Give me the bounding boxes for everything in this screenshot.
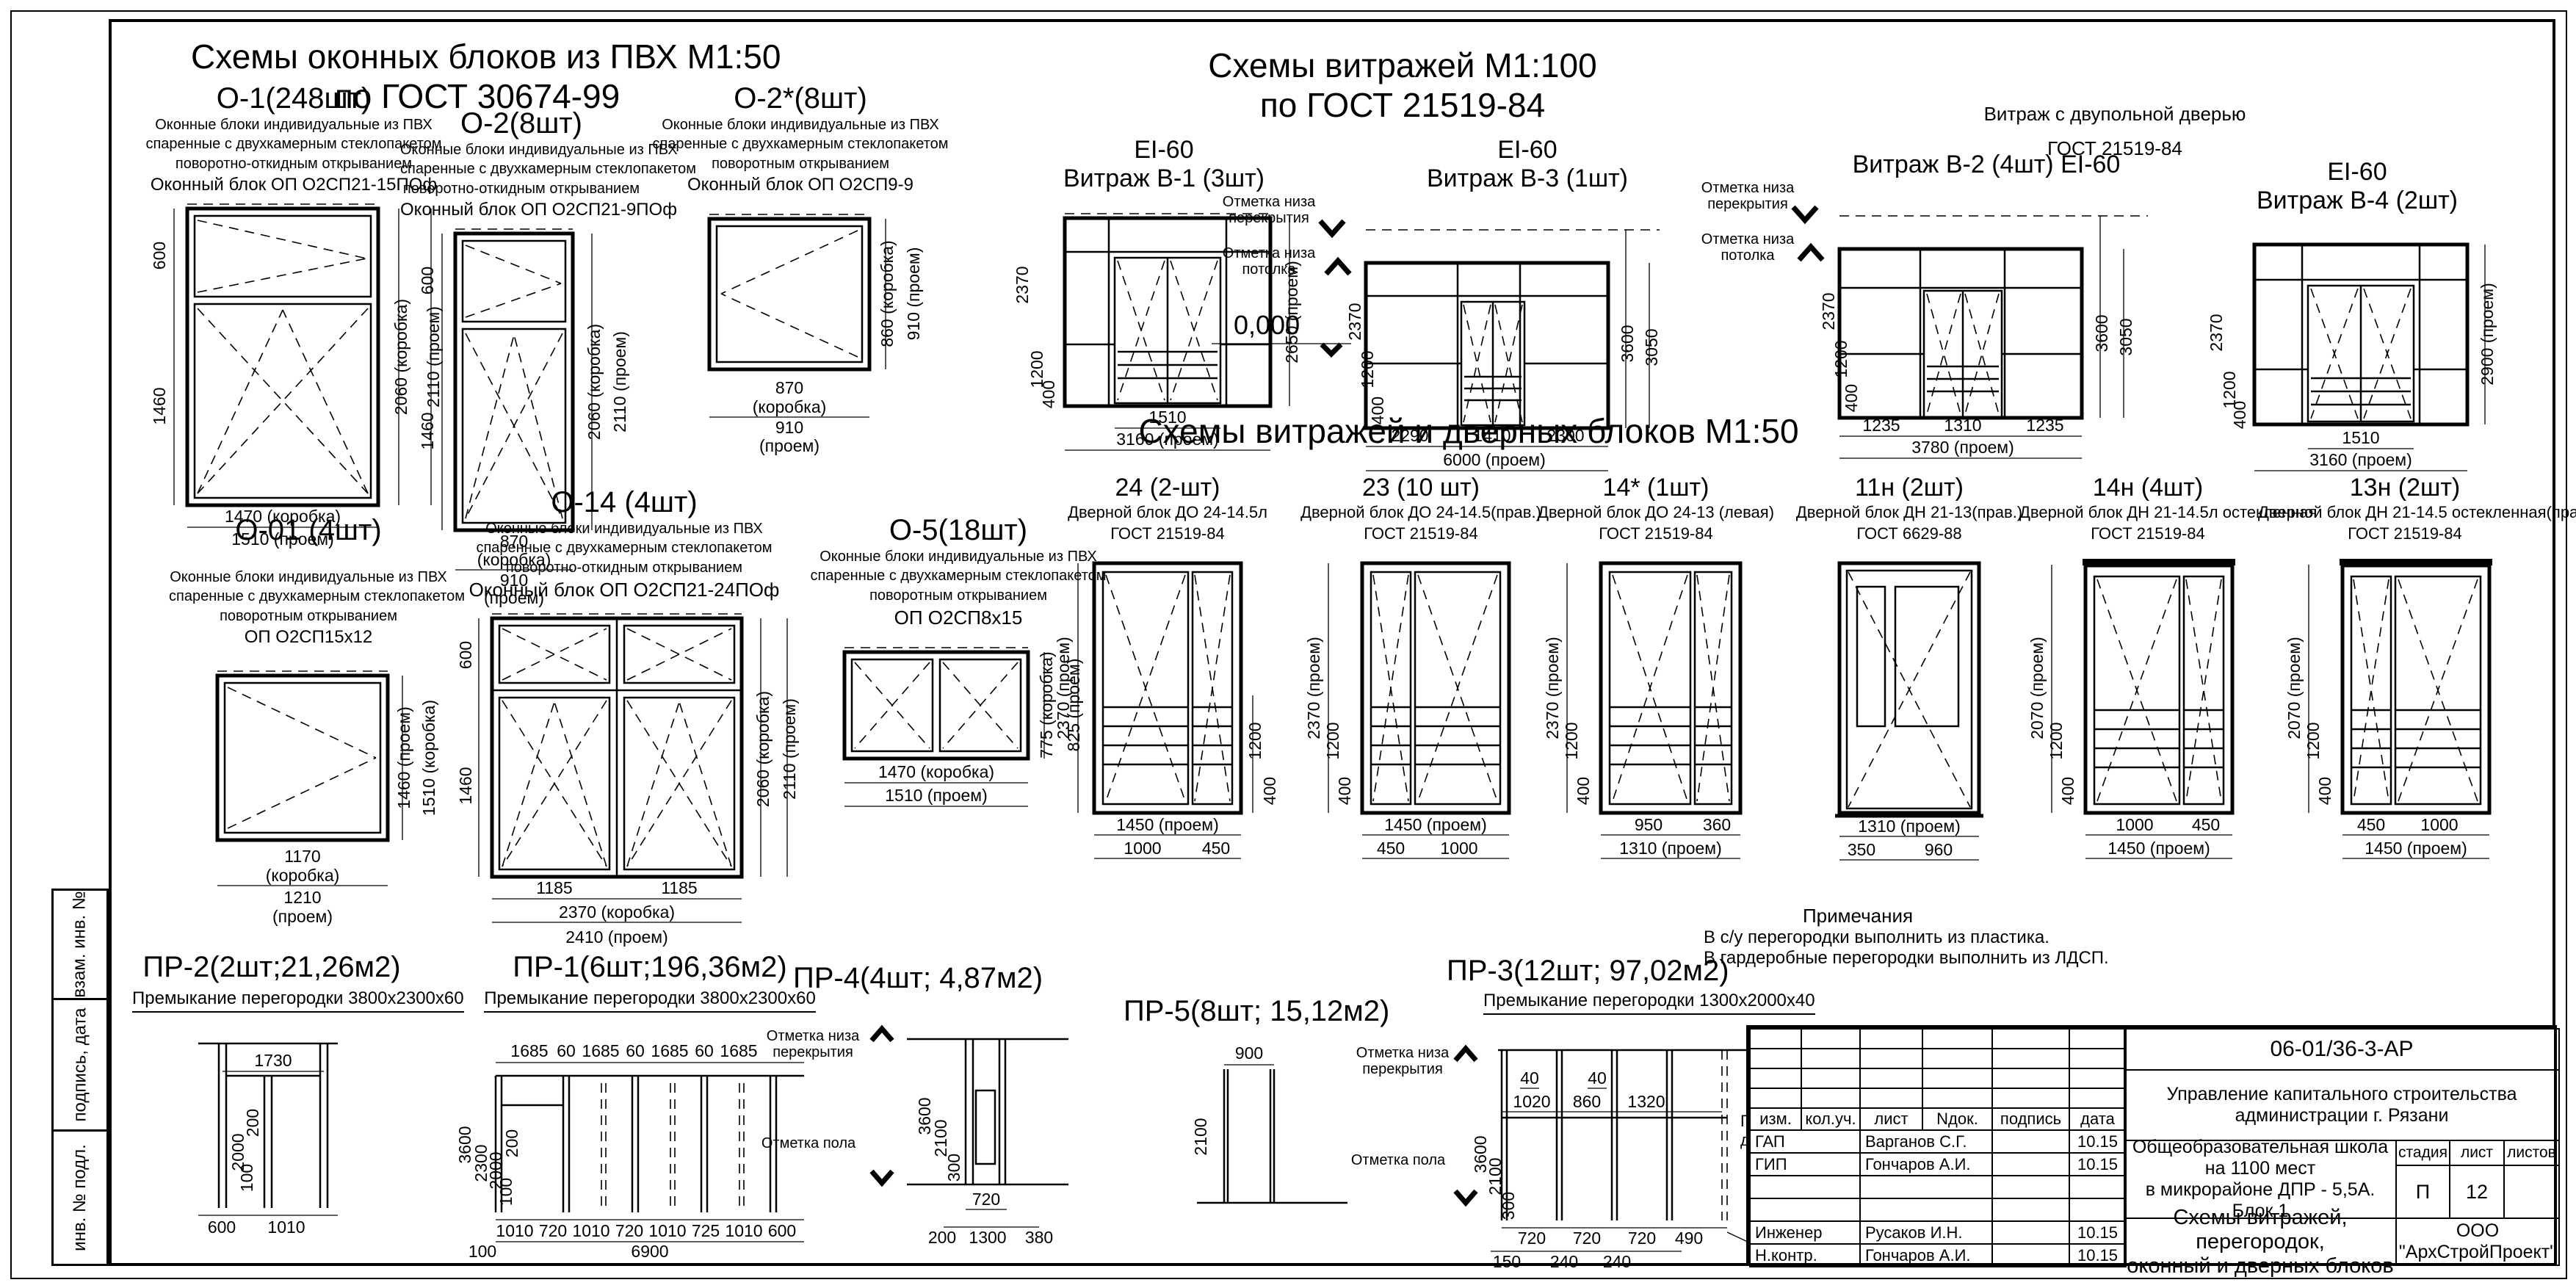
dim: 3600 <box>1618 325 1637 362</box>
row-sign <box>1992 1176 2069 1198</box>
dim: 200 <box>928 1228 956 1247</box>
dim: (коробка) <box>753 397 827 416</box>
mark-slab-bottom: Отметка низа <box>767 1028 860 1044</box>
o2-desc-line: Оконный блок ОП О2СП21-9ПОф <box>400 198 643 222</box>
o01-desc-line: ОП О2СП15х12 <box>169 626 448 649</box>
v4-title: Витраж В-4 (2шт) <box>2188 187 2526 215</box>
dim: 2110 (проем) <box>780 699 799 800</box>
figure-d13n: 13н (2шт) Дверной блок ДН 21-14.5 остекл… <box>2258 474 2552 871</box>
row-date: 10.15 <box>2069 1244 2126 1267</box>
d14n-desc: Дверной блок ДН 21-14.5л остекленная <box>2019 502 2276 524</box>
v4-fire-rating: EI-60 <box>2188 158 2526 187</box>
dim: 1685 <box>582 1041 619 1060</box>
dim: (проем) <box>759 436 820 455</box>
arrow-down-icon <box>1793 207 1817 220</box>
row-name: Гончаров А.И. <box>1860 1153 1992 1176</box>
dim: 300 <box>1499 1192 1518 1220</box>
sheet-label: лист <box>2449 1140 2505 1166</box>
org-name: Управление капитального строительства ад… <box>2124 1069 2560 1141</box>
dim: 2070 (проем) <box>2027 637 2047 739</box>
o2-desc-line: спаренные с двухкамерным стеклопакетом <box>400 159 643 178</box>
d11n-desc: ГОСТ 6629-88 <box>1792 524 2027 545</box>
row-date: 10.15 <box>2069 1221 2126 1244</box>
mark-slab-bottom: Отметка низа <box>1701 180 1795 196</box>
dim: 1450 (проем) <box>1384 815 1487 834</box>
dim: 400 <box>1335 777 1354 805</box>
dim: 400 <box>1842 384 1861 412</box>
mark-slab-bottom: Отметка низа <box>1223 194 1316 210</box>
dim: 1235 <box>2026 416 2063 435</box>
o01-desc-line: Оконные блоки индивидуальные из ПВХ <box>169 568 448 587</box>
dim: 100 <box>237 1164 256 1192</box>
row-sign <box>1992 1244 2069 1267</box>
dim: 1000 <box>2420 815 2458 834</box>
v3-drawing: Отметка низа перекрытия Отметка низа пот… <box>1182 193 1696 480</box>
dim: 1320 <box>1627 1092 1665 1111</box>
dim: 40 <box>1520 1068 1539 1088</box>
dim: 200 <box>502 1129 521 1157</box>
d13n-title: 13н (2шт) <box>2258 474 2552 502</box>
row-sign <box>1992 1153 2069 1176</box>
dim: 1000 <box>2116 815 2153 834</box>
v4-drawing: 2370 1200 400 2900 (проем) 1510 3160 (пр… <box>2188 215 2526 476</box>
o14-title: О-14 (4шт) <box>441 486 808 519</box>
dim: (проем) <box>272 907 333 926</box>
figure-pr4: ПР-4(4шт; 4,87м2) Отметка низа перекрыти… <box>742 962 1094 1252</box>
row-name: Русаков И.Н. <box>1860 1221 1992 1244</box>
o2s-desc-line: спаренные с двухкамерным стеклопакетом <box>646 134 955 153</box>
arrow-up-icon <box>1455 1049 1476 1060</box>
d14n-drawing: 2070 (проем) 1200 400 1000 450 1450 (про… <box>2027 544 2269 867</box>
dim: 400 <box>1574 777 1593 805</box>
o14-desc-line: Оконные блоки индивидуальные из ПВХ <box>441 519 808 538</box>
vitrage-section-title: Схемы витражей М1:100по ГОСТ 21519-84 <box>1153 46 1652 125</box>
mark-floor: Отметка пола <box>1351 1152 1446 1168</box>
dim: 2070 (проем) <box>2284 637 2304 739</box>
o2-desc-line: Оконные блоки индивидуальные из ПВХ <box>400 140 643 159</box>
dim: 1460 <box>456 767 475 805</box>
dim: 1410 <box>1473 426 1510 445</box>
table-row: Н.контр.Гончаров А.И.10.15 <box>1750 1244 2126 1267</box>
dim: 400 <box>2230 401 2249 429</box>
d11n-desc: Дверной блок ДН 21-13(прав.) <box>1792 502 2027 524</box>
d11n-drawing: 1310 (проем) 350 960 <box>1795 544 2023 867</box>
arrow-down-icon <box>1455 1191 1476 1203</box>
dim: 360 <box>1703 815 1731 834</box>
o5-desc-line: поворотным открыванием <box>800 586 1116 605</box>
dim: 1510 (коробка) <box>419 700 438 816</box>
doc-code: 06-01/36-3-АР <box>2124 1028 2560 1071</box>
dim: 3050 <box>2116 318 2135 355</box>
dim: 725 <box>692 1221 720 1240</box>
d23-title: 23 (10 шт) <box>1296 474 1546 502</box>
drawing-sheet: взам. инв. № подпись, дата инв. № подл. … <box>0 0 2576 1288</box>
sheets-label: листов <box>2503 1140 2560 1166</box>
o01-desc-line: спаренные с двухкамерным стеклопакетом <box>169 587 448 606</box>
mark-slab-bottom: перекрытия <box>1229 210 1309 226</box>
o2-desc-line: поворотно-откидным открыванием <box>400 179 643 198</box>
dim: 1310 (проем) <box>1858 817 1961 836</box>
d23-desc: ГОСТ 21519-84 <box>1296 524 1546 545</box>
row-name <box>1860 1198 1992 1221</box>
table-row <box>1750 1198 2126 1221</box>
d13n-drawing: 2070 (проем) 1200 400 450 1000 1450 (про… <box>2284 544 2526 867</box>
o01-drawing: 1460 (проем) 1510 (коробка) 1170 (коробк… <box>176 649 441 928</box>
dim: 1000 <box>1124 839 1161 858</box>
dim: 400 <box>1260 777 1279 805</box>
dim: 2370 (проем) <box>1304 637 1323 739</box>
dim: 3160 (проем) <box>2309 450 2412 469</box>
dim: 1210 <box>283 888 321 907</box>
table-row: ИнженерРусаков И.Н.10.15 <box>1750 1221 2126 1244</box>
o5-desc: Оконные блоки индивидуальные из ПВХ спар… <box>800 547 1116 630</box>
dim: 1020 <box>1513 1092 1550 1111</box>
dim: 1010 <box>267 1218 305 1237</box>
figure-v3: EI-60 Витраж В-3 (1шт) Отметка низа пере… <box>1175 136 1704 483</box>
pr5-title: ПР-5(8шт; 15,12м2) <box>1124 995 1366 1028</box>
dim: 450 <box>2192 815 2220 834</box>
dim: 1450 (проем) <box>2365 839 2467 858</box>
dim: 1510 (проем) <box>885 786 988 805</box>
dim: 720 <box>1518 1229 1546 1248</box>
table-row: ГИПГончаров А.И.10.15 <box>1750 1153 2126 1176</box>
dim: 150 <box>1493 1252 1521 1271</box>
dim: 1170 <box>284 847 320 866</box>
dim: 2110 (проем) <box>610 331 629 433</box>
col-list: лист <box>1860 1108 1922 1130</box>
row-role <box>1750 1176 1860 1198</box>
row-sign <box>1992 1221 2069 1244</box>
dim: 450 <box>1377 839 1405 858</box>
dim: 240 <box>1603 1252 1631 1271</box>
dim: 1200 <box>1358 350 1377 388</box>
dim: 1010 <box>496 1221 533 1240</box>
dim: 1200 <box>1831 340 1850 377</box>
v2-drawing: Отметка низа перекрытия Отметка низа пот… <box>1674 179 2159 466</box>
dim: 240 <box>1550 1252 1578 1271</box>
dim: 3050 <box>1642 328 1661 366</box>
row-role: Н.контр. <box>1750 1244 1860 1267</box>
d13n-desc: ГОСТ 21519-84 <box>2258 524 2552 545</box>
dim: 1470 (коробка) <box>878 762 994 781</box>
dim: 1510 <box>2342 428 2379 447</box>
row-sign <box>1992 1130 2069 1153</box>
dim: 1460 (проем) <box>394 706 413 809</box>
dim: 400 <box>2058 777 2077 805</box>
o2s-drawing: 860 (коробка) 910 (проем) 870 (коробка) … <box>668 197 933 465</box>
dim: (коробка) <box>266 866 340 885</box>
dim: 860 (коробка) <box>878 240 897 347</box>
o01-desc-line: поворотным открыванием <box>169 607 448 626</box>
dim: 450 <box>1202 839 1230 858</box>
o5-desc-line: спаренные с двухкамерным стеклопакетом <box>800 566 1116 585</box>
dim: 1685 <box>651 1041 688 1060</box>
notes-line: В гардеробные перегородки выполнить из Л… <box>1704 948 2174 969</box>
vitrage-section-title-line2: по ГОСТ 21519-84 <box>1153 85 1652 125</box>
dim: 3780 (проем) <box>1911 438 2014 457</box>
dim: 1450 (проем) <box>1116 815 1219 834</box>
dim: 2370 <box>2207 314 2226 351</box>
v2-title: Витраж В-2 (4шт) EI-60 <box>1814 151 2159 179</box>
dim: 2300 <box>1546 426 1584 445</box>
row-date: 10.15 <box>2069 1153 2126 1176</box>
level-mark: 0,000 <box>1234 310 1300 340</box>
dim: 720 <box>1628 1229 1656 1248</box>
dim: 3600 <box>2092 314 2111 352</box>
dim: 300 <box>944 1154 963 1182</box>
stage-value: П <box>2395 1165 2450 1219</box>
notes-block: Примечания В с/у перегородки выполнить и… <box>1704 905 2174 969</box>
mark-ceiling-bottom: потолка <box>1721 247 1775 264</box>
dim: 1200 <box>1245 723 1265 760</box>
o14-desc-line: Оконный блок ОП О2СП21-24ПОф <box>441 577 808 602</box>
row-name: Гончаров А.И. <box>1860 1244 1992 1267</box>
side-label: инв. № подл. <box>70 1144 90 1251</box>
dim: 720 <box>615 1221 643 1240</box>
dim: 60 <box>695 1041 714 1060</box>
d14s-desc: Дверной блок ДО 24-13 (левая) <box>1535 502 1777 524</box>
notes-title: Примечания <box>1704 905 2012 927</box>
o2s-desc-line: поворотным открыванием <box>646 154 955 173</box>
dim: 2290 <box>1391 426 1428 445</box>
dim: 2370 <box>1345 303 1364 340</box>
dim: 600 <box>150 242 169 269</box>
dim: 2410 (проем) <box>565 927 668 947</box>
title-block: изм. кол.уч. лист Nдок. подпись дата ГАП… <box>1746 1025 2557 1266</box>
dim: 1010 <box>648 1221 686 1240</box>
dim: 1000 <box>1440 839 1477 858</box>
col-data: дата <box>2069 1108 2126 1130</box>
windows-section-title-line1: Схемы оконных блоков из ПВХ М1:50 <box>191 37 764 76</box>
dim: 1185 <box>536 878 572 897</box>
dim: 350 <box>1848 840 1875 859</box>
dim: 400 <box>1039 380 1058 408</box>
dim: 400 <box>1368 397 1387 424</box>
dim: 1460 <box>418 412 437 449</box>
dim: 6000 (проем) <box>1443 450 1546 469</box>
row-sign <box>1992 1198 2069 1221</box>
notes-line: В с/у перегородки выполнить из пластика. <box>1704 927 2174 948</box>
table-header-row: изм. кол.уч. лист Nдок. подпись дата <box>1750 1108 2126 1130</box>
dim: 1450 (проем) <box>2108 839 2210 858</box>
dim: 380 <box>1025 1228 1053 1247</box>
side-stamp-inv: инв. № подл. <box>51 1129 109 1266</box>
dim: 910 <box>775 418 803 437</box>
dim: 2060 (коробка) <box>753 691 773 807</box>
mark-slab-bottom: перекрытия <box>1362 1061 1443 1077</box>
object-line: Общеобразовательная школа на 1100 мест <box>2125 1137 2395 1179</box>
row-role: ГИП <box>1750 1153 1860 1176</box>
o01-desc: Оконные блоки индивидуальные из ПВХ спар… <box>169 568 448 649</box>
title-block-signature-table: изм. кол.уч. лист Nдок. подпись дата ГАП… <box>1749 1028 2127 1267</box>
pr2-drawing: 1730 2000 200 100 600 1010 <box>154 1013 389 1248</box>
dim: 100 <box>468 1242 496 1261</box>
arrow-down-icon <box>1320 221 1344 234</box>
sheets-total <box>2503 1165 2560 1219</box>
pr2-title: ПР-2(2шт;21,26м2) <box>132 951 411 984</box>
dim: 860 <box>1573 1092 1601 1111</box>
o5-desc-line: ОП О2СП8х15 <box>800 605 1116 630</box>
o2s-desc-line: Оконный блок ОП О2СП9-9 <box>646 173 955 197</box>
o01-title: О-01 (4шт) <box>169 514 448 547</box>
v3-fire-rating: EI-60 <box>1351 136 1704 164</box>
dim: 2370 (проем) <box>1543 637 1562 739</box>
side-stamp-vzam: взам. инв. № <box>51 889 109 1000</box>
o5-drawing: 775 (коробка) 825 (проем) 1470 (коробка)… <box>800 630 1116 817</box>
dim: 900 <box>1235 1043 1263 1063</box>
d14n-title: 14н (4шт) <box>2019 474 2276 502</box>
row-date <box>2069 1198 2126 1221</box>
pr5-drawing: 900 2100 <box>1127 1028 1362 1226</box>
mark-slab-bottom: перекрытия <box>1707 196 1788 212</box>
dim: 1200 <box>1323 723 1342 760</box>
dim: 1010 <box>572 1221 609 1240</box>
table-row <box>1750 1176 2126 1198</box>
row-date <box>2069 1176 2126 1198</box>
dim: 490 <box>1675 1229 1703 1248</box>
dim: 6900 <box>631 1242 668 1261</box>
o5-desc-line: Оконные блоки индивидуальные из ПВХ <box>800 547 1116 566</box>
pr2-subtitle: Премыкание перегородки 3800х2300х60 <box>132 988 464 1013</box>
figure-v4: EI-60 Витраж В-4 (2шт) 2370 1200 400 290… <box>2188 158 2526 480</box>
row-name <box>1860 1176 1992 1198</box>
pr4-drawing: Отметка низа перекрытия Отметка пола 360… <box>745 995 1090 1248</box>
figure-v2: Витраж В-2 (4шт) EI-60 Отметка низа пере… <box>1674 151 2159 469</box>
dim: 2900 (проем) <box>2478 283 2497 386</box>
d14s-drawing: 2370 (проем) 1200 400 950 360 1310 (прое… <box>1542 544 1770 867</box>
o14-desc-line: поворотно-откидным открыванием <box>441 558 808 577</box>
figure-d23: 23 (10 шт) Дверной блок ДО 24-14.5(прав.… <box>1296 474 1546 871</box>
col-podpis: подпись <box>1992 1108 2069 1130</box>
o14-desc-line: спаренные с двухкамерным стеклопакетом <box>441 538 808 557</box>
sheet-number: 12 <box>2449 1165 2505 1219</box>
dim: 2100 <box>1191 1118 1210 1155</box>
d14s-desc: ГОСТ 21519-84 <box>1535 524 1777 545</box>
d23-desc: Дверной блок ДО 24-14.5(прав.) <box>1296 502 1546 524</box>
dim: 1310 <box>1944 416 1981 435</box>
sheet-title-line: оконный и дверных блоков <box>2125 1254 2395 1278</box>
dim: 1235 <box>1862 416 1900 435</box>
d14n-desc: ГОСТ 21519-84 <box>2019 524 2276 545</box>
dim: 1200 <box>1562 723 1581 760</box>
arrow-up-icon <box>1799 247 1823 260</box>
dim: 1730 <box>254 1051 292 1070</box>
mark-floor: Отметка пола <box>761 1135 856 1151</box>
dim: 1200 <box>2047 723 2066 760</box>
dim: 1185 <box>661 878 697 897</box>
dim: 600 <box>456 641 475 669</box>
d24-title: 24 (2-шт) <box>1043 474 1292 502</box>
row-date: 10.15 <box>2069 1130 2126 1153</box>
dim: 60 <box>557 1041 576 1060</box>
dim: 775 (коробка) <box>1037 652 1056 759</box>
side-stamp-podpis: подпись, дата <box>51 998 109 1132</box>
stage-label: стадия <box>2395 1140 2450 1166</box>
dim: 2370 (коробка) <box>559 902 675 922</box>
o14-desc: Оконные блоки индивидуальные из ПВХ спар… <box>441 519 808 602</box>
dim: 1300 <box>969 1228 1006 1247</box>
v3-title: Витраж В-3 (1шт) <box>1351 164 1704 193</box>
row-role: ГАП <box>1750 1130 1860 1153</box>
company-name: ООО "АрхСтройПроект" <box>2395 1218 2560 1266</box>
arrow-up-icon <box>872 1029 892 1041</box>
figure-o5: О-5(18шт) Оконные блоки индивидуальные и… <box>800 514 1116 821</box>
dim: 910 (проем) <box>904 247 923 340</box>
col-ndok: Nдок. <box>1922 1108 1992 1130</box>
o2-title: О-2(8шт) <box>400 107 643 140</box>
row-name: Варганов С.Г. <box>1860 1130 1992 1153</box>
arrow-down-icon <box>872 1171 892 1183</box>
dim: 1200 <box>2304 723 2323 760</box>
dim: 1460 <box>150 387 169 424</box>
figure-pr5: ПР-5(8шт; 15,12м2) 900 2100 <box>1124 995 1366 1230</box>
d23-drawing: 2370 (проем) 1200 400 1450 (проем) 450 1… <box>1303 544 1538 867</box>
figure-pr3: ПР-3(12шт; 97,02м2) Премыкание перегород… <box>1344 955 1814 1279</box>
o14-drawing: 600 1460 2060 (коробка) 2110 (проем) 118… <box>441 602 815 947</box>
dim: 960 <box>1925 840 1953 859</box>
dim: 870 <box>775 378 803 397</box>
pr4-title: ПР-4(4шт; 4,87м2) <box>742 962 1094 995</box>
col-koluch: кол.уч. <box>1801 1108 1860 1130</box>
d14s-title: 14* (1шт) <box>1535 474 1777 502</box>
dim: 1310 (проем) <box>1619 839 1722 858</box>
o5-title: О-5(18шт) <box>800 514 1116 547</box>
figure-d11n: 11н (2шт) Дверной блок ДН 21-13(прав.)ГО… <box>1792 474 2027 871</box>
dim: 1685 <box>510 1041 548 1060</box>
mark-ceiling-bottom: Отметка низа <box>1223 245 1316 261</box>
arrow-down-icon <box>1322 344 1341 354</box>
figure-o01: О-01 (4шт) Оконные блоки индивидуальные … <box>169 514 448 932</box>
dim: 2370 <box>1013 266 1032 303</box>
dim: 720 <box>539 1221 567 1240</box>
figure-d14s: 14* (1шт) Дверной блок ДО 24-13 (левая)Г… <box>1535 474 1777 871</box>
dim: 2100 <box>1486 1157 1505 1195</box>
vitrage-door-note-line1: Витраж с двупольной дверью <box>1924 103 2306 126</box>
dim: 40 <box>1588 1068 1607 1088</box>
dim: 200 <box>243 1109 262 1137</box>
dim: 450 <box>2357 815 2385 834</box>
figure-pr2: ПР-2(2шт;21,26м2) Премыкание перегородки… <box>132 951 411 1251</box>
d13n-desc: Дверной блок ДН 21-14.5 остекленная(прав… <box>2258 502 2552 524</box>
dim: 100 <box>496 1178 515 1206</box>
pr3-subtitle: Премыкание перегородки 1300х2000х40 <box>1483 991 1815 1015</box>
row-role <box>1750 1198 1860 1221</box>
sheet-title: Схемы витражей, перегородок,оконный и дв… <box>2124 1218 2397 1266</box>
mark-ceiling-bottom: потолка <box>1242 261 1296 278</box>
dim: 600 <box>208 1218 236 1237</box>
dim: 60 <box>626 1041 645 1060</box>
dim: 720 <box>1573 1229 1601 1248</box>
o2-desc: Оконные блоки индивидуальные из ПВХ спар… <box>400 140 643 222</box>
arrow-up-icon <box>1326 261 1350 274</box>
figure-o14: О-14 (4шт) Оконные блоки индивидуальные … <box>441 486 808 951</box>
dim: 720 <box>972 1190 1000 1209</box>
figure-d14n: 14н (4шт) Дверной блок ДН 21-14.5л остек… <box>2019 474 2276 871</box>
dim: 2370 <box>1819 292 1838 330</box>
o2s-desc: Оконные блоки индивидуальные из ПВХ спар… <box>646 115 955 197</box>
side-label: взам. инв. № <box>70 891 90 997</box>
figure-o2s: О-2*(8шт) Оконные блоки индивидуальные и… <box>646 82 955 468</box>
row-role: Инженер <box>1750 1221 1860 1244</box>
dim: 400 <box>2315 777 2334 805</box>
dim: 950 <box>1635 815 1663 834</box>
mark-slab-bottom: перекрытия <box>773 1044 853 1060</box>
dim: 825 (проем) <box>1064 659 1083 752</box>
dim: 2100 <box>931 1119 950 1157</box>
dim: 600 <box>418 267 437 294</box>
col-izm: изм. <box>1750 1108 1801 1130</box>
side-label: подпись, дата <box>70 1008 90 1122</box>
